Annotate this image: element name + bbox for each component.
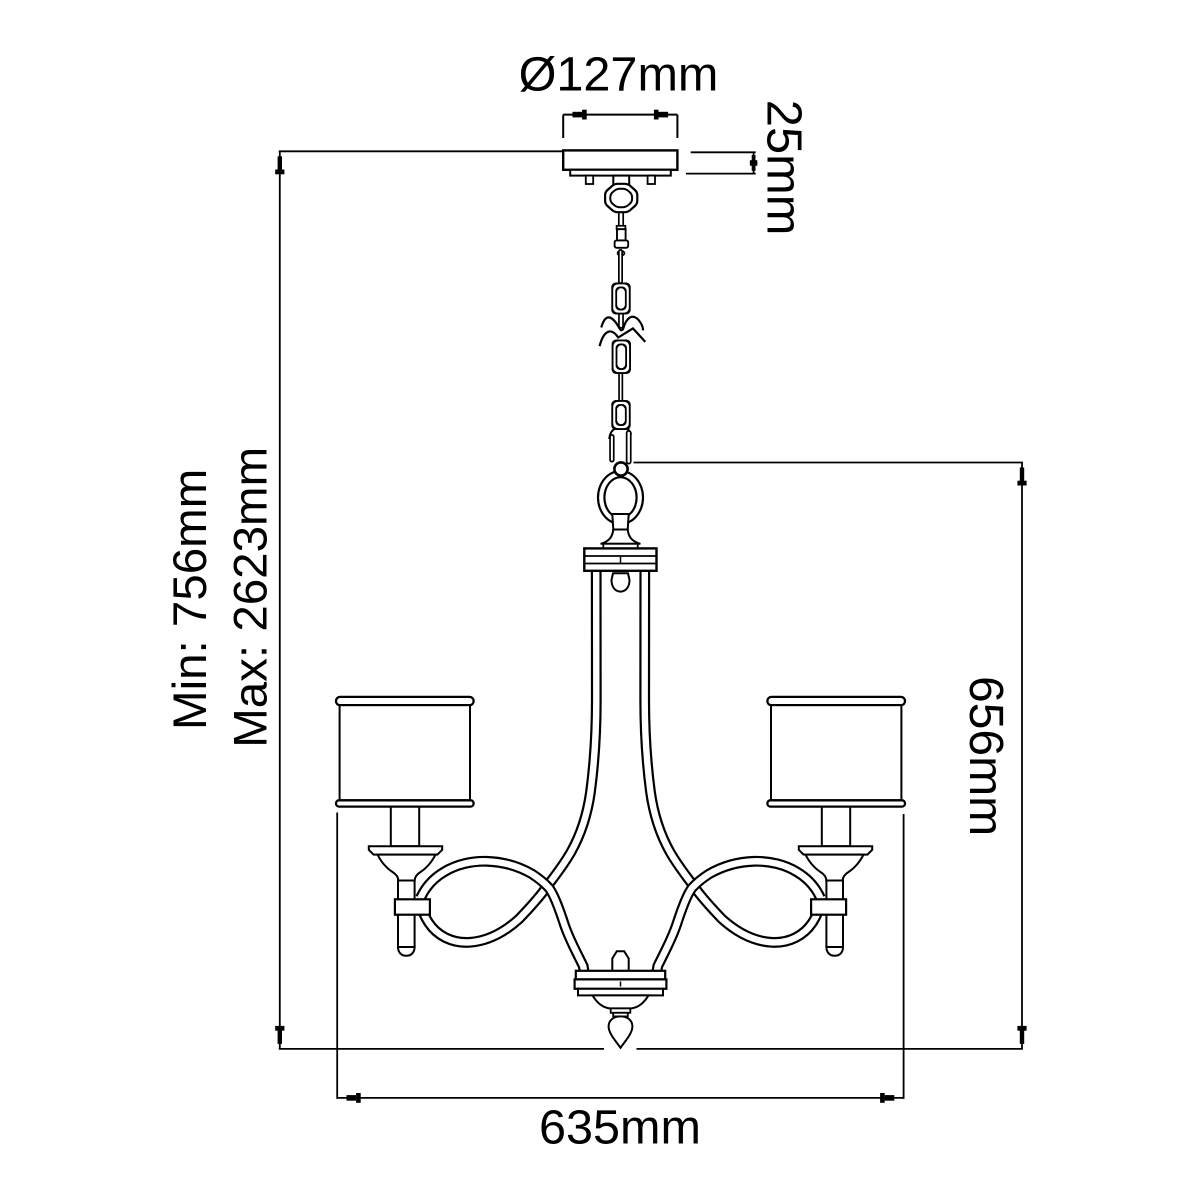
- svg-text:25mm: 25mm: [757, 100, 811, 236]
- svg-text:Ø127mm: Ø127mm: [519, 47, 719, 101]
- svg-text:635mm: 635mm: [539, 1100, 701, 1154]
- svg-text:Min: 756mm: Min: 756mm: [164, 469, 217, 730]
- svg-text:Max: 2623mm: Max: 2623mm: [225, 447, 278, 748]
- svg-text:656mm: 656mm: [959, 676, 1012, 836]
